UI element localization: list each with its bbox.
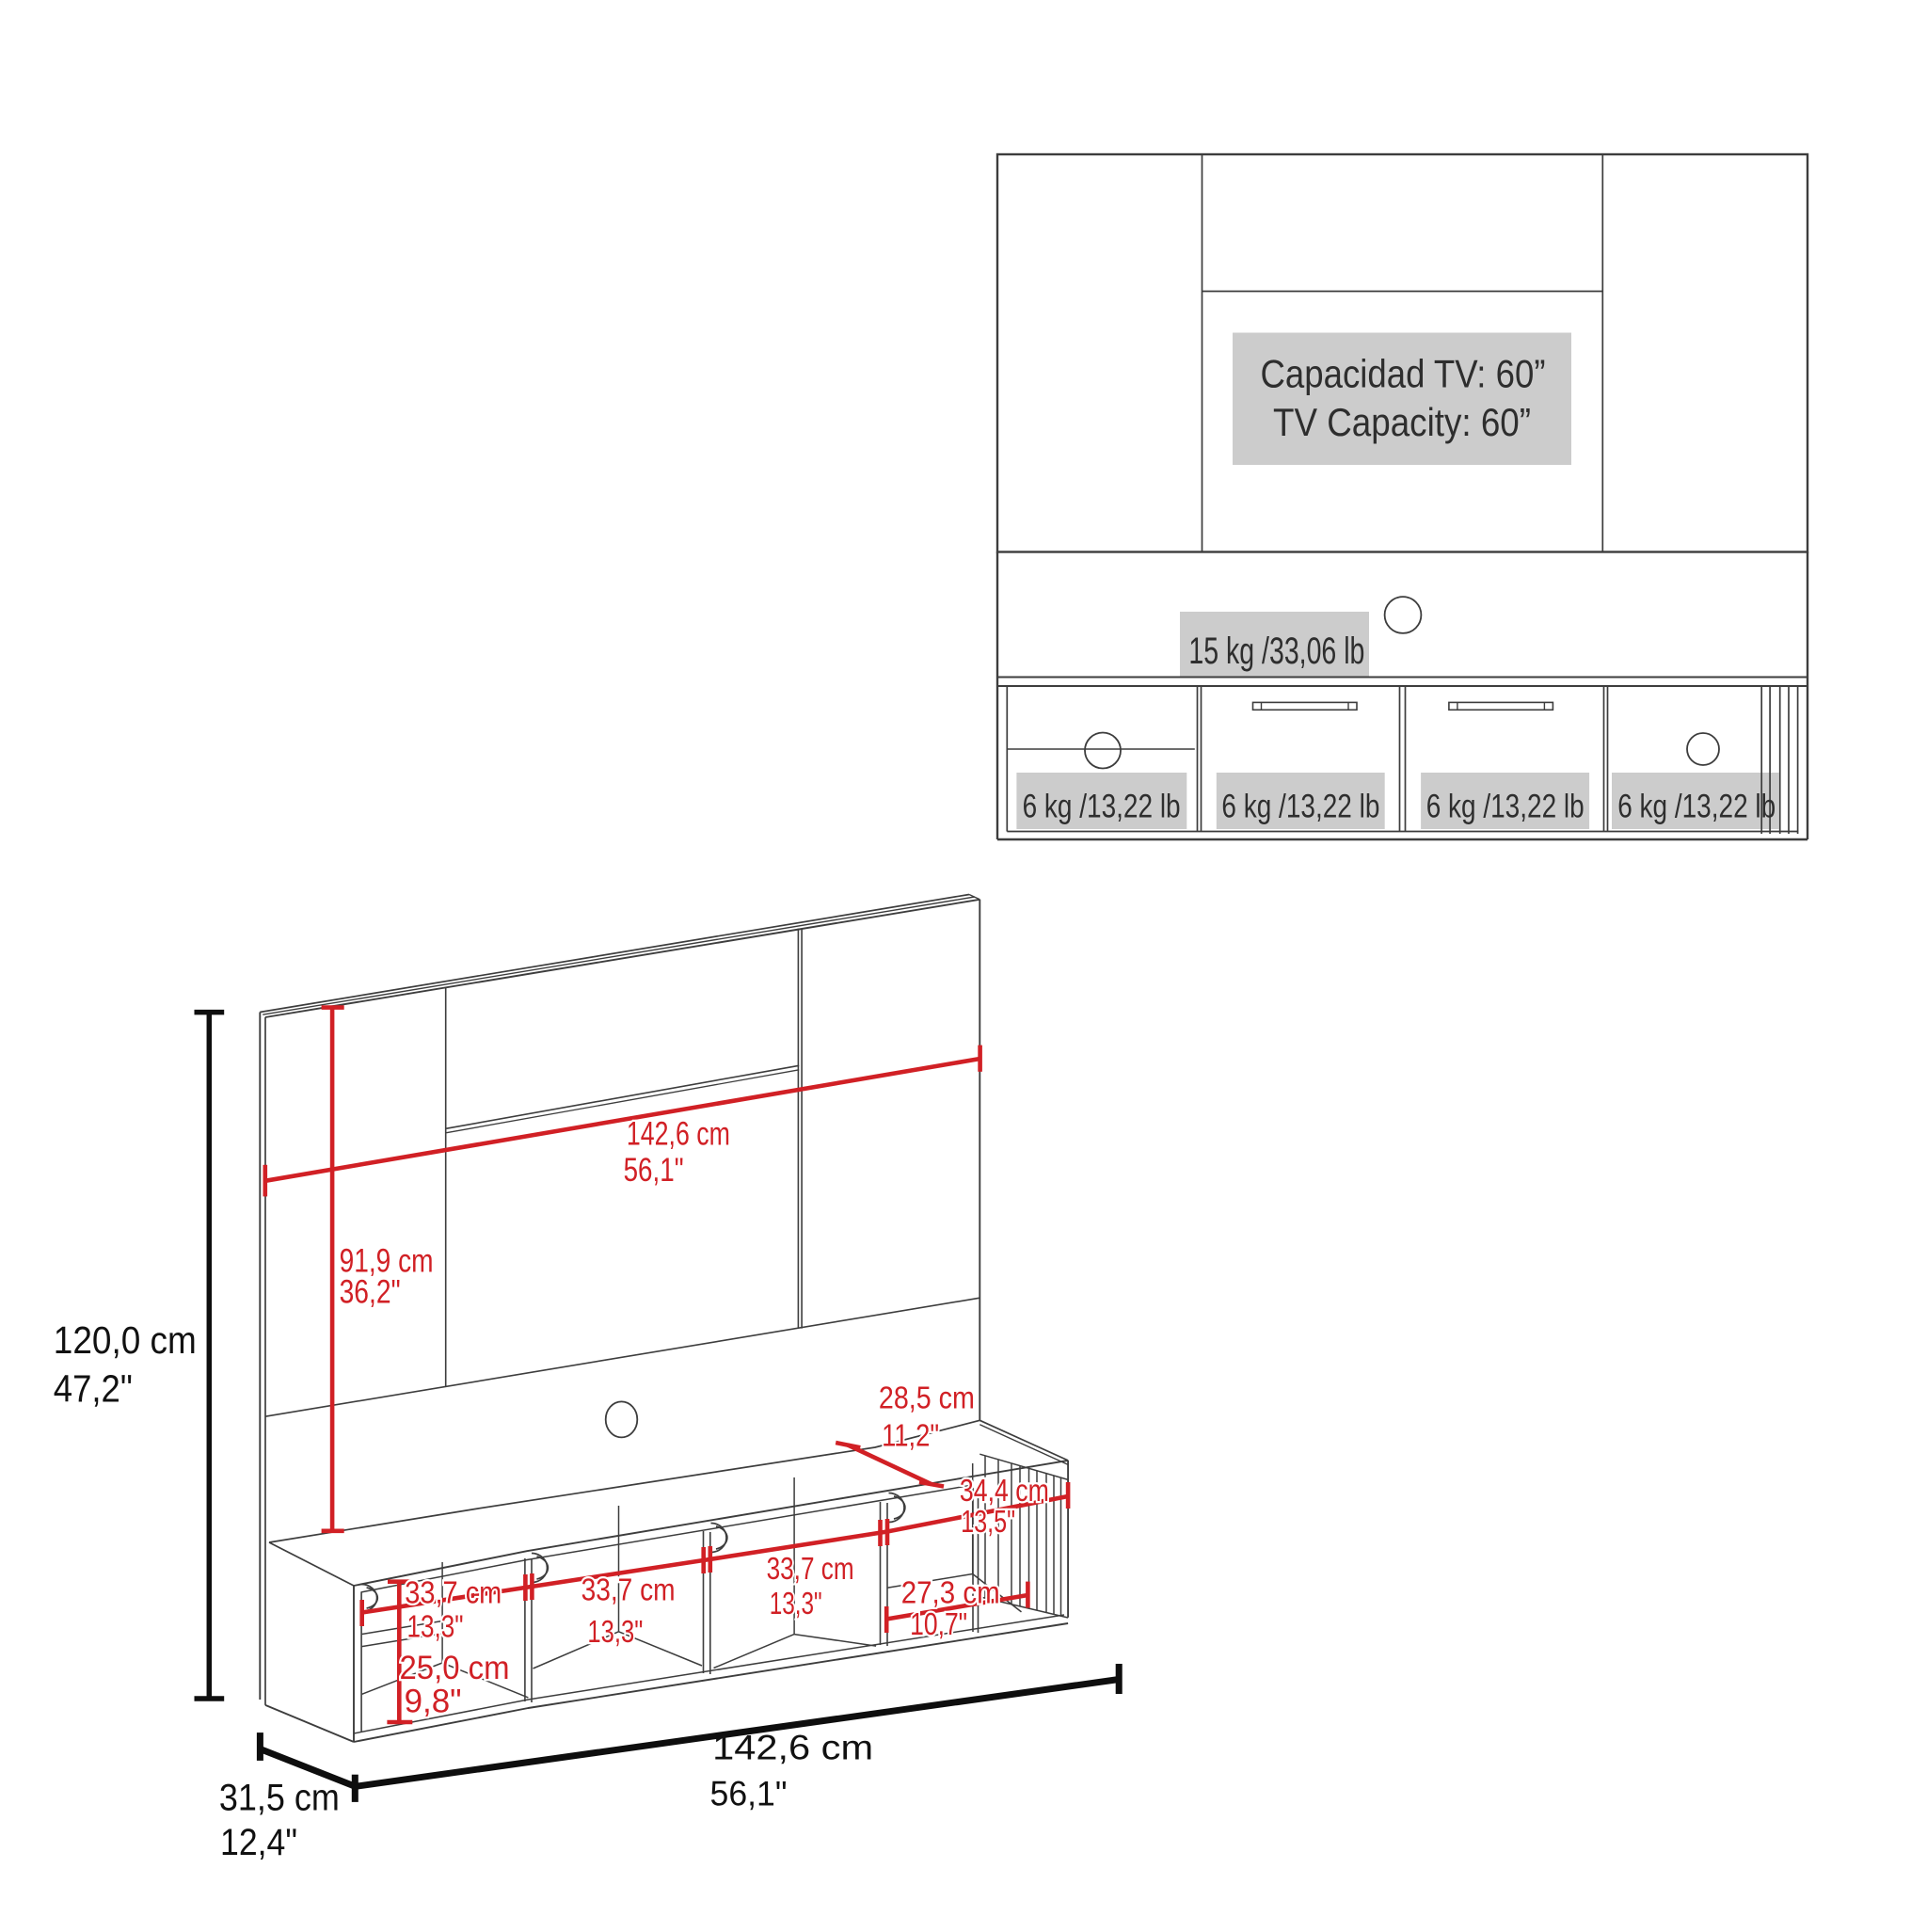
svg-text:15 kg /33,06 lb: 15 kg /33,06 lb	[1188, 631, 1364, 672]
svg-text:13,3": 13,3"	[770, 1586, 822, 1621]
svg-text:Capacidad TV: 60”: Capacidad TV: 60”	[1261, 351, 1546, 395]
svg-text:56,1": 56,1"	[624, 1152, 684, 1189]
svg-text:25,0 cm: 25,0 cm	[400, 1650, 510, 1686]
svg-text:36,2": 36,2"	[340, 1273, 401, 1310]
svg-text:28,5 cm: 28,5 cm	[879, 1381, 975, 1415]
svg-text:47,2": 47,2"	[54, 1366, 133, 1410]
svg-text:13,3": 13,3"	[587, 1614, 643, 1649]
svg-text:10,7": 10,7"	[910, 1606, 967, 1641]
svg-text:56,1": 56,1"	[710, 1775, 788, 1813]
svg-text:9,8": 9,8"	[405, 1684, 462, 1720]
svg-text:13,5": 13,5"	[961, 1504, 1015, 1539]
svg-text:13,3": 13,3"	[407, 1609, 464, 1644]
svg-text:TV Capacity: 60”: TV Capacity: 60”	[1273, 400, 1531, 444]
svg-text:33,7 cm: 33,7 cm	[767, 1551, 854, 1586]
svg-text:12,4": 12,4"	[220, 1822, 297, 1863]
svg-text:6 kg /13,22 lb: 6 kg /13,22 lb	[1617, 788, 1776, 825]
svg-text:33,7 cm: 33,7 cm	[405, 1575, 502, 1610]
svg-text:6 kg /13,22 lb: 6 kg /13,22 lb	[1426, 788, 1585, 825]
svg-text:120,0 cm: 120,0 cm	[54, 1318, 197, 1362]
svg-text:11,2": 11,2"	[882, 1417, 939, 1452]
svg-text:33,7 cm: 33,7 cm	[581, 1573, 676, 1607]
svg-text:6 kg /13,22 lb: 6 kg /13,22 lb	[1221, 788, 1379, 825]
svg-text:31,5 cm: 31,5 cm	[219, 1778, 340, 1819]
svg-text:6 kg /13,22 lb: 6 kg /13,22 lb	[1023, 788, 1181, 825]
svg-text:142,6 cm: 142,6 cm	[627, 1116, 730, 1153]
svg-text:27,3 cm: 27,3 cm	[901, 1574, 1000, 1609]
svg-text:34,4 cm: 34,4 cm	[960, 1473, 1049, 1508]
svg-text:142,6 cm: 142,6 cm	[712, 1729, 873, 1767]
